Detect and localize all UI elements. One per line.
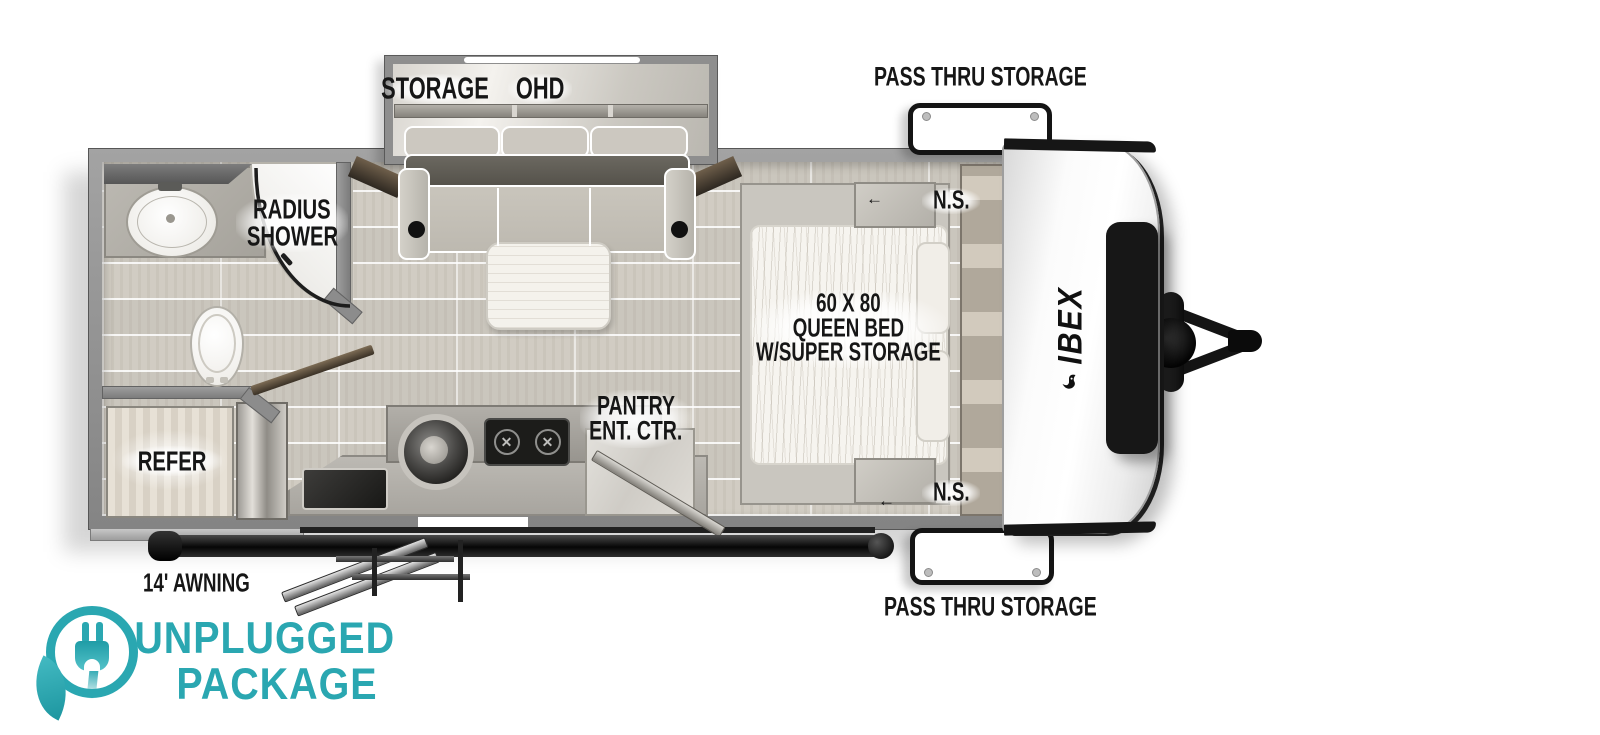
sofa-cupholder-right xyxy=(671,221,688,238)
slide-arrow-icon: ← xyxy=(866,190,883,207)
burner-icon: ✕ xyxy=(494,429,520,455)
hitch-coupler xyxy=(1228,330,1262,352)
step-leg xyxy=(458,540,463,602)
overhead-shelf-edge xyxy=(394,104,708,118)
cooktop: ✕ ✕ xyxy=(484,418,570,466)
label-pass-thru-top: PASS THRU STORAGE xyxy=(872,64,1088,92)
label-pass-thru-bottom: PASS THRU STORAGE xyxy=(880,594,1100,622)
counter-basin xyxy=(302,468,388,510)
label-queen-bed: 60 X 80QUEEN BEDW/SUPER STORAGE xyxy=(750,290,946,368)
bathroom-sink xyxy=(126,186,218,258)
label-pantry-ent-ctr: PANTRYENT. CTR. xyxy=(580,390,692,448)
screw-icon xyxy=(924,568,933,577)
sofa-back-tufted xyxy=(404,154,690,189)
front-rock-guard xyxy=(1106,222,1158,454)
screw-icon xyxy=(1030,112,1039,121)
label-ohd: OHD xyxy=(508,74,572,104)
sofa-cupholder-left xyxy=(408,221,425,238)
plug-icon xyxy=(82,622,89,643)
bathroom-wall xyxy=(102,386,254,399)
plug-icon xyxy=(75,641,109,671)
sofa-armrest-right xyxy=(664,168,696,260)
kitchen-sink xyxy=(398,414,474,490)
slide-arrow-icon: ← xyxy=(878,492,895,509)
step-tread xyxy=(352,574,470,580)
screw-icon xyxy=(922,112,931,121)
label-awning: 14' AWNING xyxy=(132,570,260,598)
wardrobe-cabinet xyxy=(236,402,288,520)
awning-rail xyxy=(300,527,875,533)
slide-window-marker xyxy=(464,57,640,63)
front-wardrobe xyxy=(960,164,1004,516)
ibex-logo-text: IBEX xyxy=(1050,286,1090,364)
screw-icon xyxy=(1032,568,1041,577)
dinette-table xyxy=(486,242,611,330)
shelf-gap xyxy=(608,105,613,117)
sofa-armrest-left xyxy=(398,168,430,260)
floorplan-diagram: ✕ ✕ ← ← IBEX STORAGE OH xyxy=(0,0,1600,735)
sofa-seat-divider xyxy=(589,188,591,246)
plug-icon xyxy=(96,622,103,643)
awning-tube xyxy=(162,535,884,557)
burner-icon: ✕ xyxy=(535,429,561,455)
step-tread xyxy=(336,556,454,562)
ibex-logo: IBEX xyxy=(1051,272,1089,402)
awning-end-cap-right xyxy=(868,533,894,559)
sofa-seat-divider xyxy=(497,188,499,246)
label-radius-shower: RADIUSSHOWER xyxy=(236,194,348,252)
faucet-icon xyxy=(158,182,182,191)
badge-text-unplugged: UNPLUGGED xyxy=(126,614,403,662)
ibex-goat-icon xyxy=(1060,372,1080,392)
label-ns-bottom: N.S. xyxy=(922,480,980,506)
step-leg xyxy=(372,548,377,596)
shelf-gap xyxy=(512,105,517,117)
label-ns-top: N.S. xyxy=(922,188,980,214)
awning-end-cap-left xyxy=(148,531,182,561)
label-storage: STORAGE xyxy=(385,74,485,104)
badge-text-package: PACKAGE xyxy=(170,660,384,708)
label-refer: REFER xyxy=(122,446,222,476)
medicine-shelf xyxy=(104,164,252,184)
pass-thru-storage-box-bottom xyxy=(910,528,1054,585)
cap-trim-bottom xyxy=(1004,521,1156,535)
